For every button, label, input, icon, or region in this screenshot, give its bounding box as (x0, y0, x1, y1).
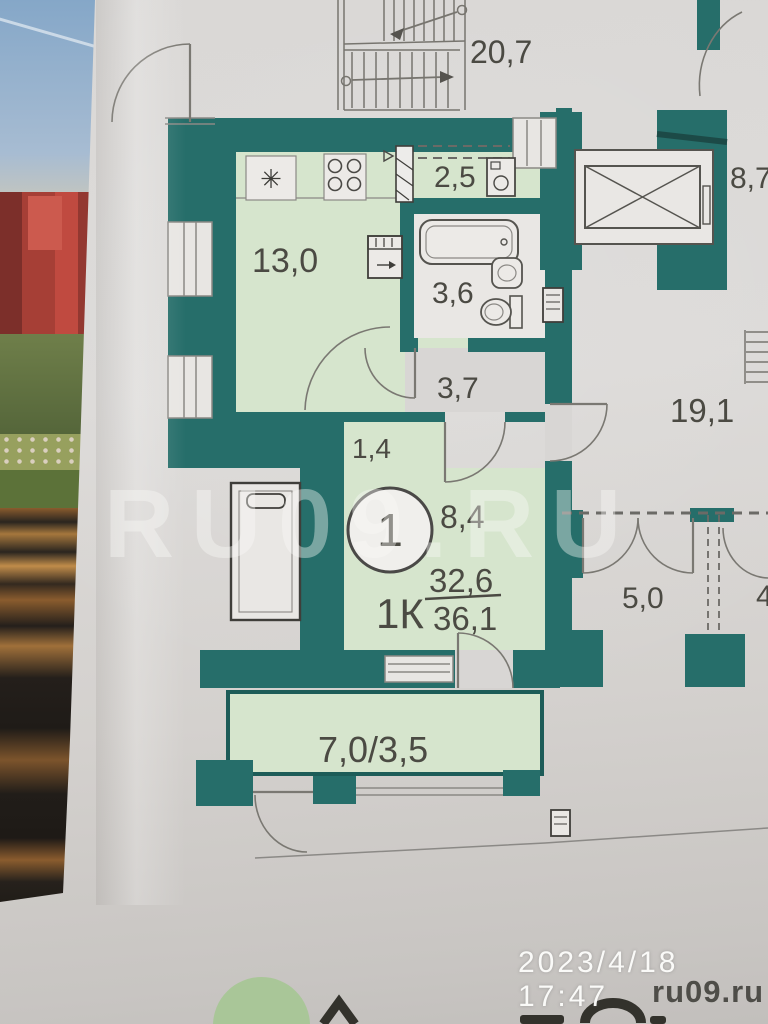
label-area-total: 36,1 (433, 600, 497, 637)
door-balcony-outer (255, 795, 307, 852)
plan-outer-boundary (255, 828, 768, 858)
sink-icon: ✳ (260, 164, 282, 194)
site-watermark: ru09.ru (652, 974, 764, 1010)
label-balcony: 7,0/3,5 (318, 729, 428, 770)
label-kitchen-niche: 2,5 (434, 161, 476, 194)
label-elevator-lobby: 8,7 (730, 162, 768, 195)
photo-building-highlight (28, 196, 62, 250)
label-wardrobe: 1,4 (352, 433, 391, 464)
photo-sky (0, 0, 100, 192)
label-bathroom: 3,6 (432, 277, 474, 310)
label-stairwell: 20,7 (470, 34, 532, 70)
label-storage: 5,0 (622, 582, 664, 615)
riser-box-lower (551, 810, 570, 836)
label-kitchen: 13,0 (252, 242, 318, 280)
label-unit-type: 1К (376, 590, 424, 637)
label-corridor: 19,1 (670, 392, 734, 429)
door-right-edge (723, 528, 768, 578)
elevator (575, 150, 713, 244)
refrigerator (368, 236, 402, 278)
vent-shaft (396, 146, 413, 202)
label-partial-right: 4 (756, 580, 768, 613)
door-storage-right (638, 518, 693, 573)
label-hall: 3,7 (437, 372, 479, 405)
page-curl-shadow (96, 0, 186, 905)
washbasin (492, 258, 522, 288)
watermark-large: RU09.RU (104, 468, 638, 580)
magazine-page-photo: ✳ (0, 0, 768, 1024)
riser-box-upper (543, 288, 563, 322)
